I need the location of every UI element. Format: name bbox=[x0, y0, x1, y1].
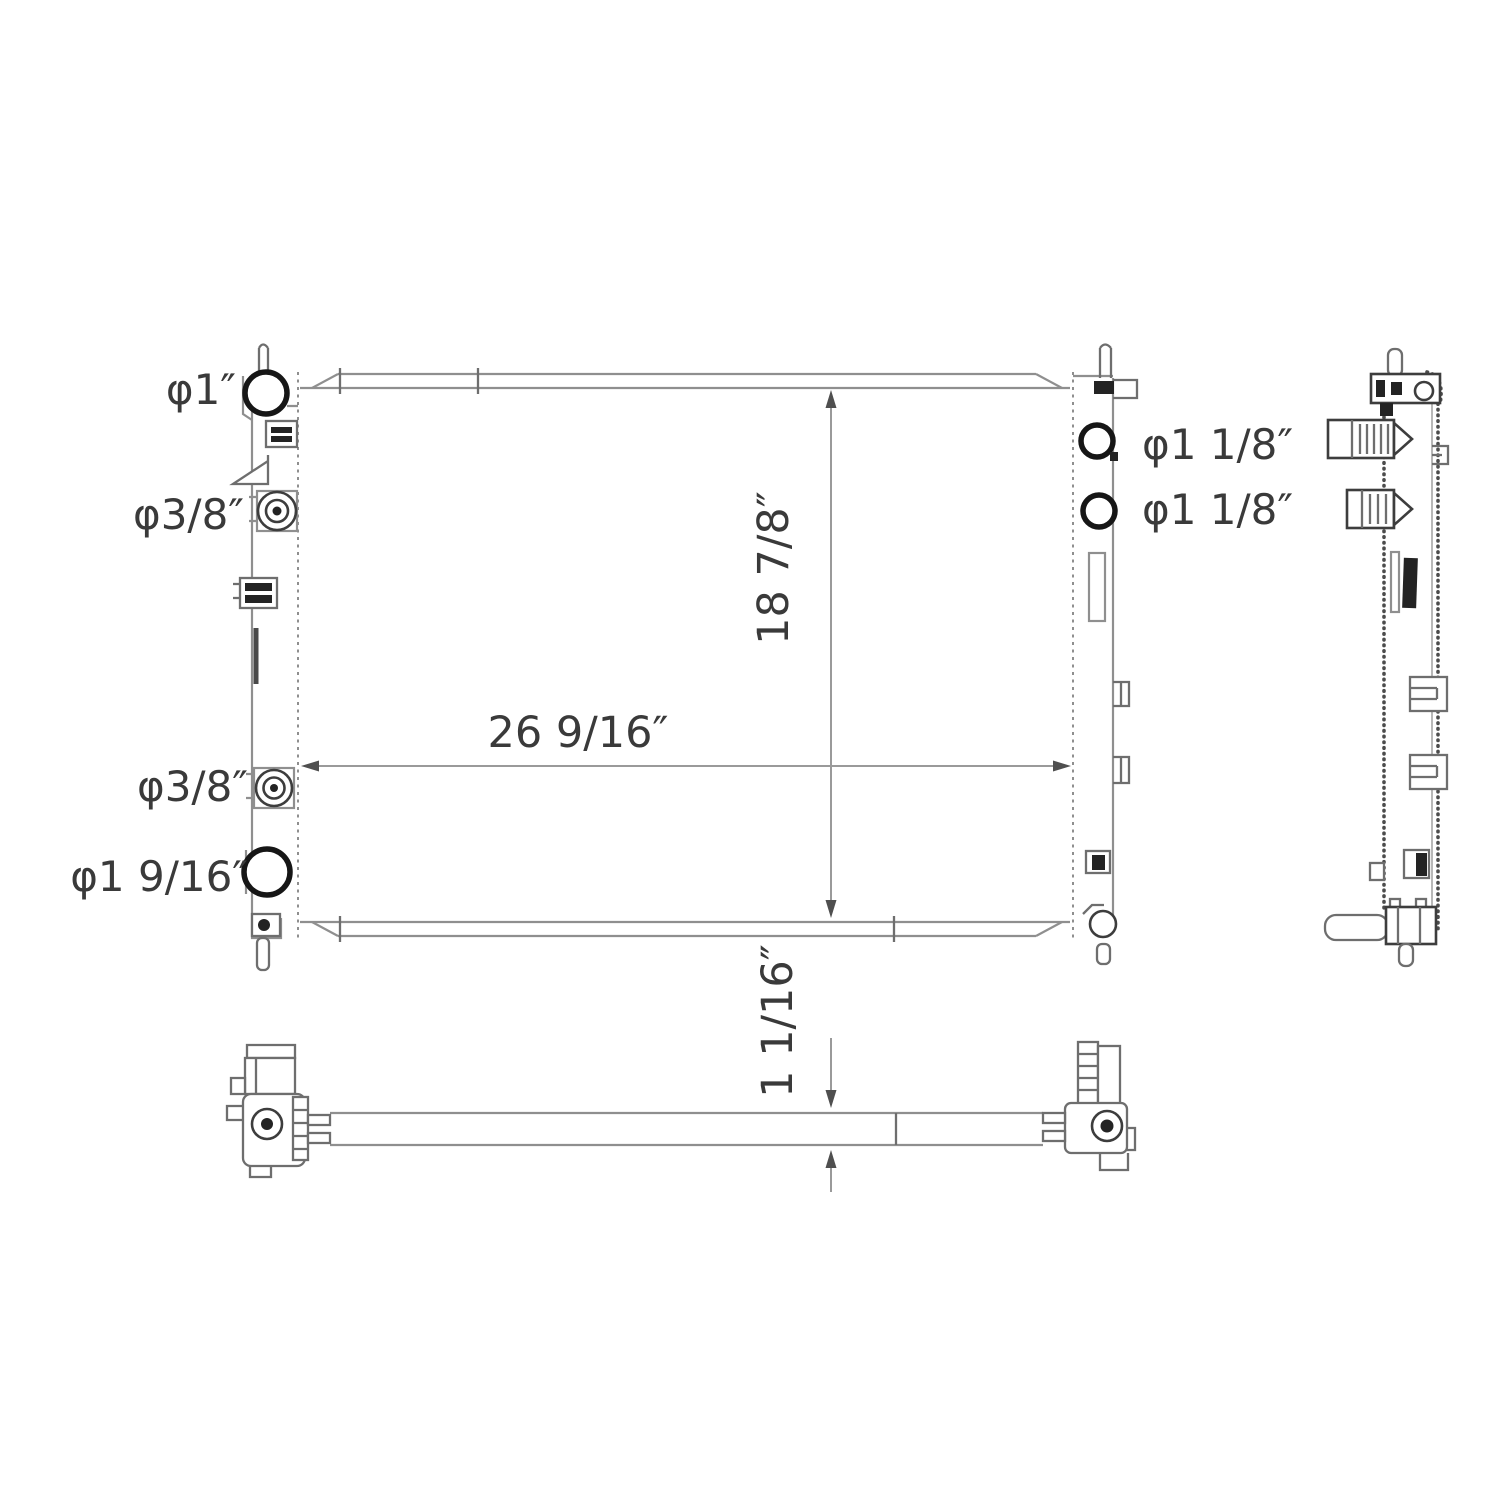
side-hose-fitting-upper bbox=[1328, 420, 1412, 458]
label-inlet-top-left: φ1″ bbox=[166, 365, 236, 414]
side-bottom-rod bbox=[1325, 915, 1388, 940]
side-header-block bbox=[1371, 374, 1440, 416]
mounting-pin-top-right bbox=[1100, 345, 1111, 379]
bracket-flag-left bbox=[233, 455, 268, 484]
dimension-core-height: 18 7/8″ bbox=[749, 390, 837, 918]
side-clip-left bbox=[1370, 863, 1384, 880]
drain-plug bbox=[1083, 905, 1116, 964]
port-right-lower-1-1-8in bbox=[1083, 495, 1115, 527]
mounting-pin-bottom-left bbox=[257, 938, 269, 970]
bottom-right-end-tank bbox=[1043, 1042, 1135, 1170]
dimension-core-thickness: 1 1/16″ bbox=[753, 944, 837, 1192]
side-bracket-upper-right bbox=[1432, 446, 1448, 464]
connector-left-middle bbox=[233, 578, 277, 608]
slot-right-middle bbox=[1089, 553, 1105, 621]
core-thickness-value: 1 1/16″ bbox=[753, 944, 803, 1098]
outlet-port-1-9-16in bbox=[244, 849, 290, 895]
side-hose-fitting-lower bbox=[1347, 490, 1412, 528]
side-view bbox=[1325, 349, 1448, 966]
pin-base-dark bbox=[1094, 381, 1114, 394]
clip-right-b bbox=[1113, 757, 1129, 783]
clip-right-a bbox=[1113, 682, 1129, 706]
side-label-plate bbox=[1391, 552, 1418, 612]
side-pin-top bbox=[1388, 349, 1402, 376]
label-fitting-upper-left: φ3/8″ bbox=[133, 490, 244, 539]
side-bracket-a bbox=[1410, 677, 1447, 711]
bottom-core-strip bbox=[330, 1113, 1043, 1145]
fitting-3-8-lower bbox=[246, 768, 294, 808]
port-right-upper-1-1-8in bbox=[1081, 425, 1113, 457]
right-tank bbox=[1073, 345, 1137, 965]
label-outlet-bottom-left: φ1 9/16″ bbox=[70, 852, 248, 901]
port-tab-dark bbox=[1110, 452, 1118, 461]
bottom-left-end-tank bbox=[227, 1045, 330, 1177]
core-height-value: 18 7/8″ bbox=[749, 491, 799, 645]
clip-bottom-left bbox=[252, 914, 280, 936]
core-width-value: 26 9/16″ bbox=[487, 708, 668, 758]
hose-clip-upper-left bbox=[266, 421, 297, 447]
radiator-drawing-page: 26 9/16″ 18 7/8″ 1 1/16″ φ1″ φ3/8″ φ3/8″… bbox=[0, 0, 1500, 1500]
bottom-view bbox=[227, 1042, 1135, 1177]
core-outline bbox=[300, 368, 1070, 942]
radiator-drawing: 26 9/16″ 18 7/8″ 1 1/16″ φ1″ φ3/8″ φ3/8″… bbox=[0, 0, 1500, 1500]
clip-right-dark bbox=[1086, 851, 1110, 873]
side-bracket-b bbox=[1410, 755, 1447, 789]
side-bottom-block bbox=[1386, 899, 1436, 944]
front-view bbox=[233, 345, 1137, 971]
label-port-right-lower: φ1 1/8″ bbox=[1142, 485, 1293, 534]
inlet-port-1in bbox=[245, 372, 287, 414]
side-pin-bottom bbox=[1399, 944, 1413, 966]
fitting-3-8-upper bbox=[249, 491, 297, 531]
label-fitting-lower-left: φ3/8″ bbox=[137, 762, 248, 811]
label-port-right-upper: φ1 1/8″ bbox=[1142, 420, 1293, 469]
dimension-core-width: 26 9/16″ bbox=[301, 708, 1071, 772]
bracket-top-right bbox=[1113, 380, 1137, 398]
side-clip-dark bbox=[1404, 850, 1429, 878]
